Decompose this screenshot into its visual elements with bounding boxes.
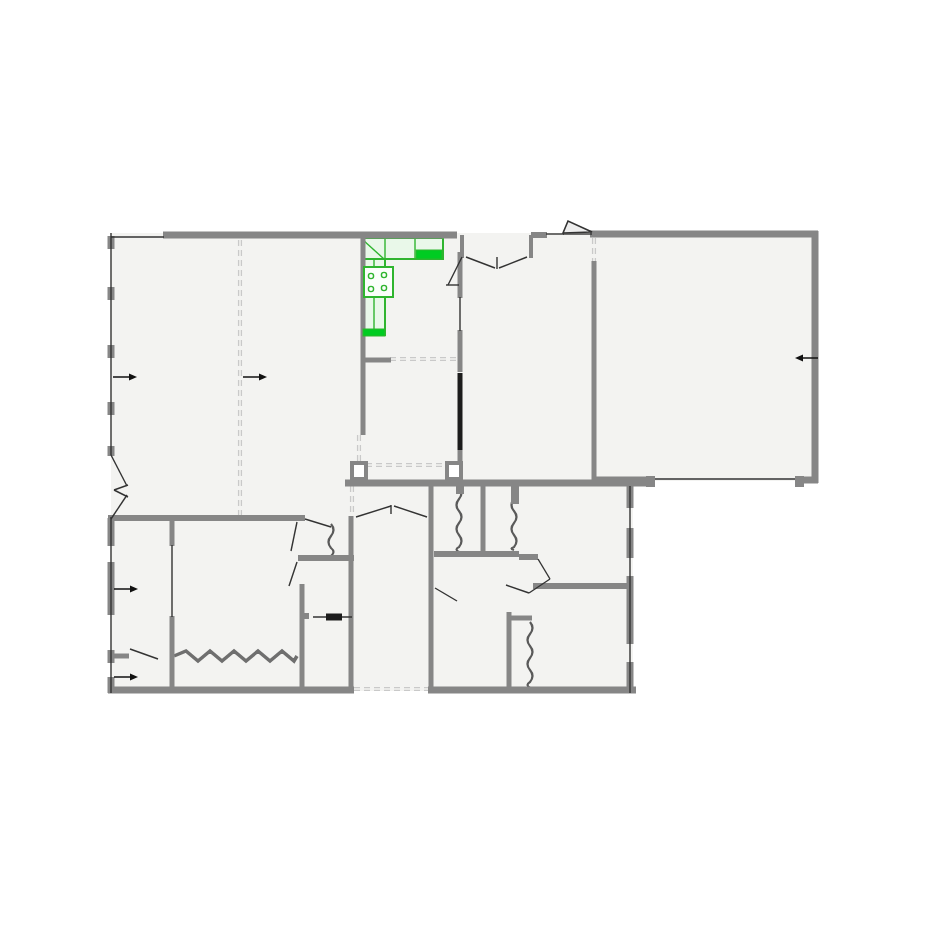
floorplan-drawing [0,0,925,925]
kitchen-counter-cap [363,329,385,336]
column-post-right [447,463,461,479]
closet-anchor-b [511,486,519,504]
bath-wall-tick [302,613,309,619]
kitchen-sink [416,250,442,259]
wall-post-a [646,476,655,487]
column-post-left [352,463,366,479]
floorplan-page [0,0,925,925]
stove [364,267,393,297]
wall-post-b [795,476,804,487]
entry-door-flap [563,221,592,233]
closet-anchor-a [456,486,464,494]
